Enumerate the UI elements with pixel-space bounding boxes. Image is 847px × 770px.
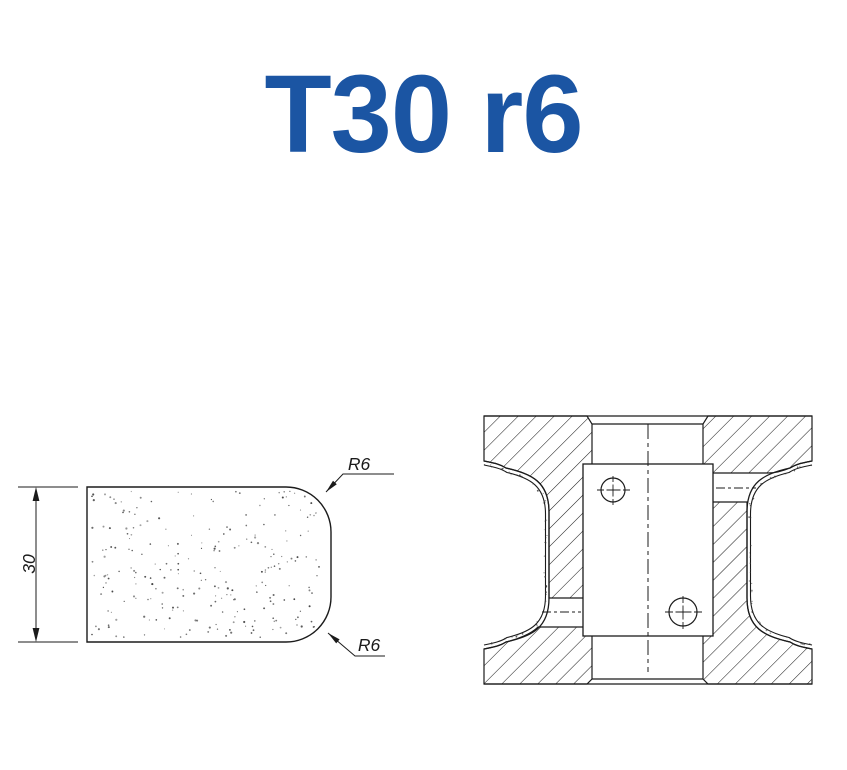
- coating-line-right: [751, 465, 813, 645]
- technical-drawing-canvas: 30 R6 R6: [0, 0, 847, 770]
- dimension-30: 30: [18, 487, 78, 642]
- hatch-region-right-web-and-bottom: [703, 502, 812, 684]
- hatch-region-top-left-and-web: [484, 416, 592, 598]
- leader-r6-top: R6: [326, 454, 394, 492]
- section-view: [484, 416, 812, 684]
- radius-label-top: R6: [348, 454, 371, 474]
- leader-line-top: [326, 474, 394, 492]
- hatch-region-bottom-left-flange: [484, 627, 592, 684]
- radius-label-bottom: R6: [358, 635, 381, 655]
- hatch-region-top-right-flange: [703, 416, 812, 473]
- dim-arrow-up: [33, 487, 40, 501]
- coating-line-left: [484, 465, 546, 645]
- leader-r6-bottom: R6: [328, 633, 385, 656]
- dim-arrow-down: [33, 628, 40, 642]
- dimension-label: 30: [19, 554, 39, 574]
